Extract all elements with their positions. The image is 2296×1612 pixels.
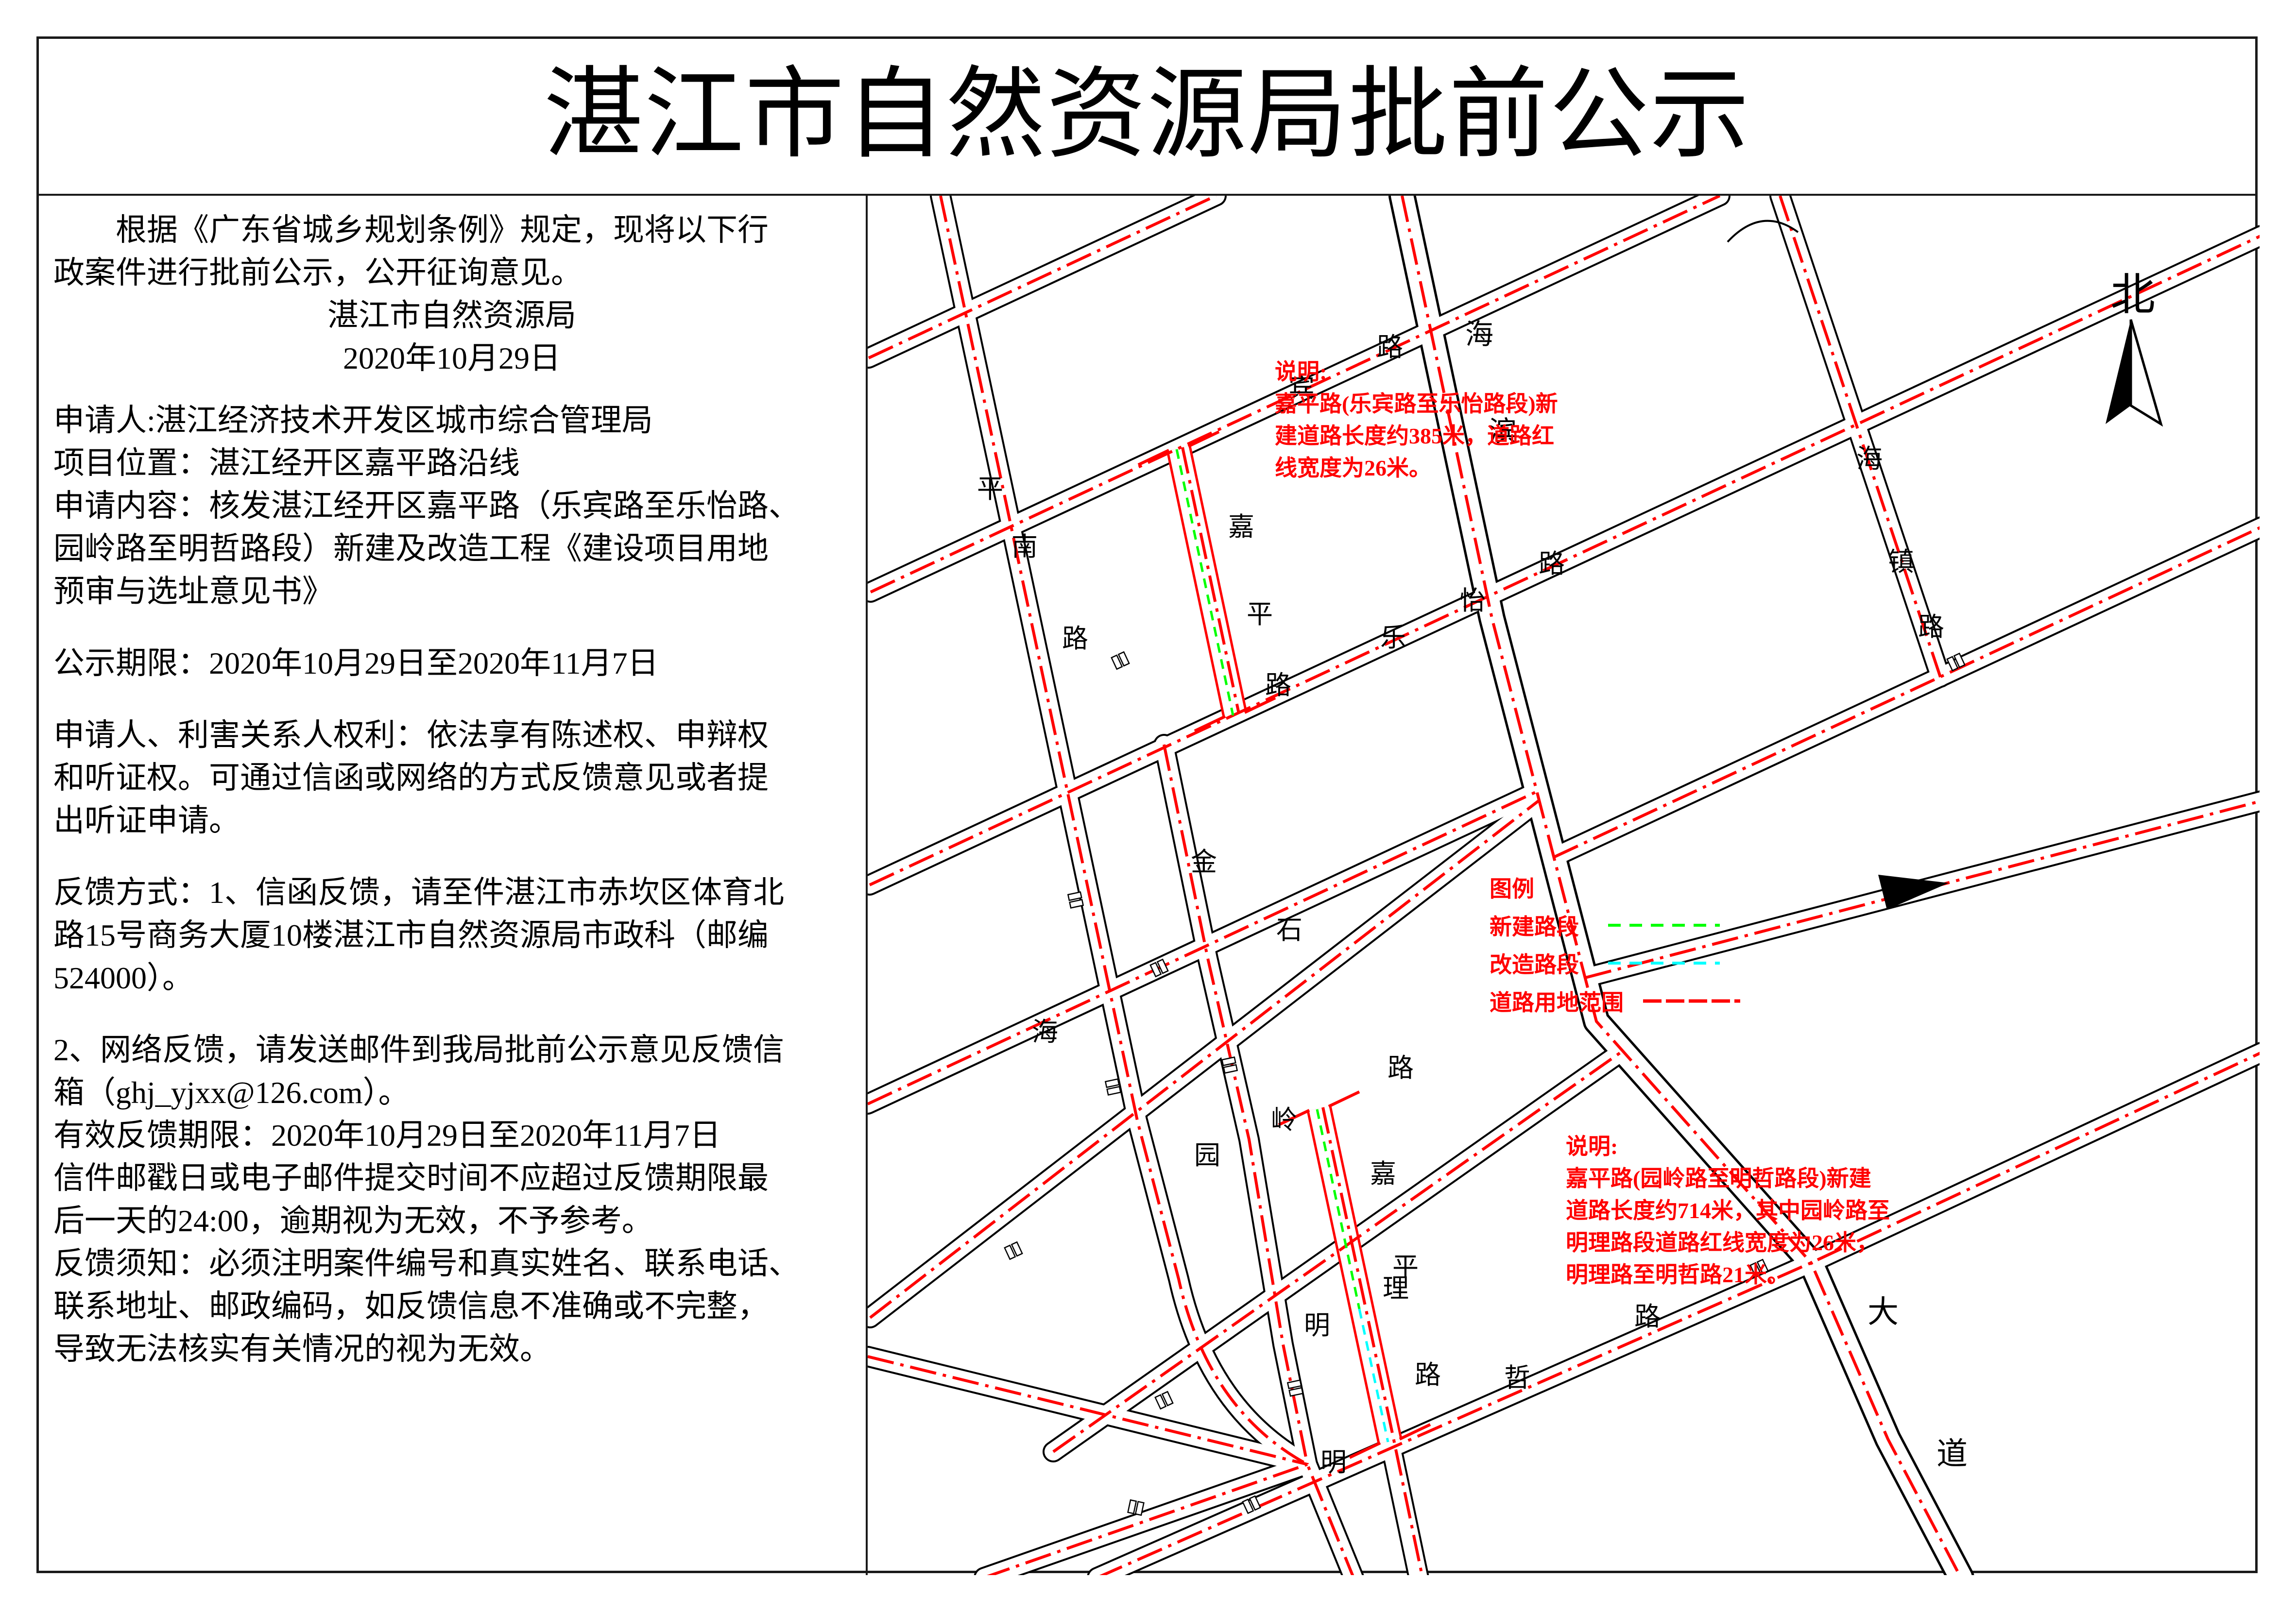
feedback-online-line: 2、网络反馈，请发送邮件到我局批前公示意见反馈信 箱（ghj_yjxx@126.… <box>53 1029 855 1114</box>
requirement-line: 反馈须知：必须注明案件编号和真实姓名、联系电话、 联系地址、邮政编码，如反馈信息… <box>53 1242 855 1371</box>
map-note-south: 说明: 嘉平路(园岭路至明哲路段)新建 道路长度约714米，其中园岭路至 明理路… <box>1566 1131 1890 1291</box>
road-label-tick <box>1005 1242 1022 1259</box>
road-name-char: 路 <box>1062 624 1088 653</box>
north-label: 北 <box>2110 270 2155 320</box>
notice-text-column: 根据《广东省城乡规划条例》规定，现将以下行 政案件进行批前公示，公开征询意见。 … <box>53 209 855 1371</box>
title-bar: 湛江市自然资源局批前公示 <box>36 39 2258 194</box>
map-note-north: 说明: 嘉平路(乐宾路至乐怡路段)新 建道路长度约385米，道路红 线宽度为26… <box>1275 356 1558 484</box>
legend-label-redline: 道路用地范围 <box>1490 985 1624 1017</box>
road-name-char: 平 <box>977 475 1003 504</box>
notice-page: 湛江市自然资源局批前公示 根据《广东省城乡规划条例》规定，现将以下行 政案件进行… <box>0 0 2296 1612</box>
road-name-char: 乐 <box>1380 623 1406 652</box>
location-line: 项目位置：湛江经开区嘉平路沿线 <box>53 442 855 485</box>
period-line: 公示期限：2020年10月29日至2020年11月7日 <box>53 642 855 685</box>
road-name-char: 路 <box>1539 549 1565 578</box>
legend-item-new: 新建路段 <box>1490 906 1740 944</box>
road-name-char: 镇 <box>1888 547 1914 577</box>
north-arrow-right <box>2131 320 2161 424</box>
road-name-char: 平 <box>1247 600 1273 629</box>
new-road-north <box>1177 449 1233 715</box>
road-name-char: 路 <box>1918 612 1944 642</box>
notice-intro: 根据《广东省城乡规划条例》规定，现将以下行 政案件进行批前公示，公开征询意见。 <box>53 209 855 294</box>
road-name-char: 路 <box>1634 1302 1661 1331</box>
road-name-char: 嘉 <box>1370 1159 1396 1188</box>
road-name-char: 路 <box>1265 671 1291 700</box>
legend-title: 图例 <box>1490 868 1740 906</box>
rights-line: 申请人、利害关系人权利：依法享有陈述权、申辩权 和听证权。可通过信函或网络的方式… <box>53 714 855 842</box>
applicant-line: 申请人:湛江经济技术开发区城市综合管理局 <box>53 399 855 442</box>
road-name-char: 海 <box>1032 1018 1058 1047</box>
valid-period-line: 有效反馈期限：2020年10月29日至2020年11月7日 <box>53 1114 855 1157</box>
road-name-char: 大 <box>1868 1295 1899 1329</box>
road-name-char: 路 <box>1388 1053 1414 1083</box>
map-legend: 图例 新建路段 改造路段 道路用地范围 <box>1490 868 1740 1020</box>
legend-swatch-new-icon <box>1608 922 1720 928</box>
road-name-char: 明 <box>1304 1311 1330 1340</box>
legend-item-redline: 道路用地范围 <box>1490 982 1740 1020</box>
content-line: 申请内容：核发湛江经开区嘉平路（乐宾路至乐怡路、 园岭路至明哲路段）新建及改造工… <box>53 485 855 613</box>
road-label-tick <box>1112 652 1129 669</box>
issuer-name: 湛江市自然资源局 <box>112 294 792 337</box>
plan-map: 北 宾路乐怡路嘉平路海滨大道海镇路平南路园岭路明理明哲路嘉平路金石海 说明: 嘉… <box>868 196 2260 1575</box>
deadline-note-line: 信件邮戳日或电子邮件提交时间不应超过反馈期限最 后一天的24:00，逾期视为无效… <box>53 1157 855 1242</box>
north-arrow-left <box>2106 320 2131 424</box>
road-name-char: 岭 <box>1271 1105 1297 1135</box>
feedback-mail-line: 反馈方式：1、信函反馈，请至件湛江市赤坎区体育北 路15号商务大厦10楼湛江市自… <box>53 871 855 1000</box>
road-name-char: 怡 <box>1459 586 1486 615</box>
issue-date: 2020年10月29日 <box>112 337 792 380</box>
north-arrow: 北 <box>2106 270 2161 424</box>
road-name-char: 明 <box>1320 1448 1347 1477</box>
legend-label-new: 新建路段 <box>1490 909 1579 941</box>
road-label-tick <box>1155 1391 1173 1408</box>
road-name-char: 路 <box>1415 1360 1441 1390</box>
issuer-block: 湛江市自然资源局 2020年10月29日 <box>112 294 792 380</box>
page-title: 湛江市自然资源局批前公示 <box>36 39 2258 192</box>
legend-swatch-redline-icon <box>1643 998 1740 1004</box>
road-label-tick <box>1128 1500 1144 1515</box>
road-name-char: 哲 <box>1504 1363 1530 1392</box>
road-name-char: 南 <box>1011 532 1038 561</box>
road-name-char: 平 <box>1392 1253 1419 1282</box>
road-label-tick <box>1105 1079 1120 1095</box>
road-name-char: 道 <box>1936 1437 1968 1471</box>
road-name-char: 石 <box>1276 916 1302 945</box>
road-name-char: 海 <box>1465 319 1493 350</box>
road-name-char: 海 <box>1856 444 1883 474</box>
road-name-char: 嘉 <box>1228 512 1254 542</box>
legend-swatch-rebuild-icon <box>1608 960 1720 966</box>
road-name-char: 金 <box>1191 848 1217 877</box>
road-name-char: 园 <box>1194 1141 1220 1170</box>
legend-item-rebuild: 改造路段 <box>1490 944 1740 982</box>
road-label-tick <box>1068 892 1083 908</box>
legend-label-rebuild: 改造路段 <box>1490 947 1579 979</box>
